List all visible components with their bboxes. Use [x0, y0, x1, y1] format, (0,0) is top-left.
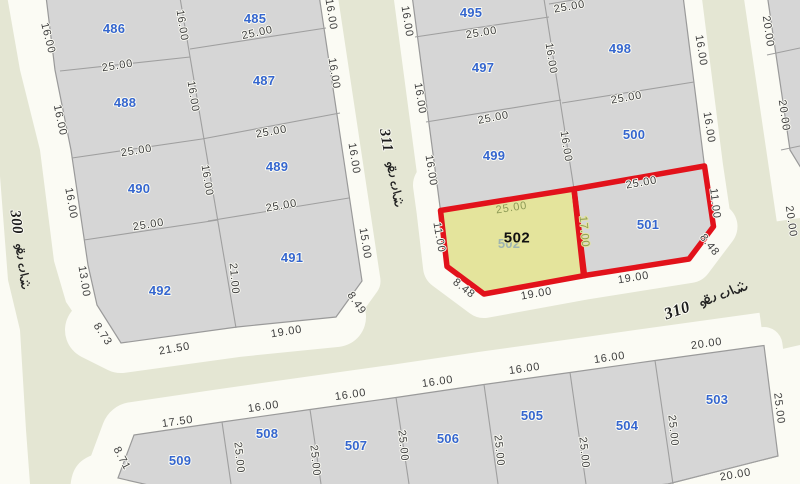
svg-text:488: 488	[114, 95, 136, 110]
svg-text:497: 497	[472, 60, 494, 75]
svg-text:487: 487	[253, 73, 275, 88]
svg-text:485: 485	[244, 11, 266, 26]
svg-text:300: 300	[6, 208, 25, 235]
svg-text:508: 508	[256, 426, 278, 441]
svg-text:504: 504	[616, 418, 639, 433]
svg-text:503: 503	[706, 392, 728, 407]
svg-text:501: 501	[637, 217, 659, 232]
svg-text:489: 489	[266, 159, 288, 174]
svg-text:507: 507	[345, 438, 367, 453]
svg-text:490: 490	[128, 181, 150, 196]
svg-text:506: 506	[437, 431, 459, 446]
svg-text:498: 498	[609, 41, 631, 56]
svg-text:486: 486	[103, 21, 125, 36]
svg-text:500: 500	[623, 127, 645, 142]
svg-text:502: 502	[504, 229, 531, 246]
svg-text:509: 509	[169, 453, 191, 468]
svg-text:499: 499	[483, 148, 505, 163]
svg-text:495: 495	[460, 5, 482, 20]
svg-text:492: 492	[149, 283, 171, 298]
svg-text:505: 505	[521, 408, 543, 423]
svg-text:491: 491	[281, 250, 303, 265]
